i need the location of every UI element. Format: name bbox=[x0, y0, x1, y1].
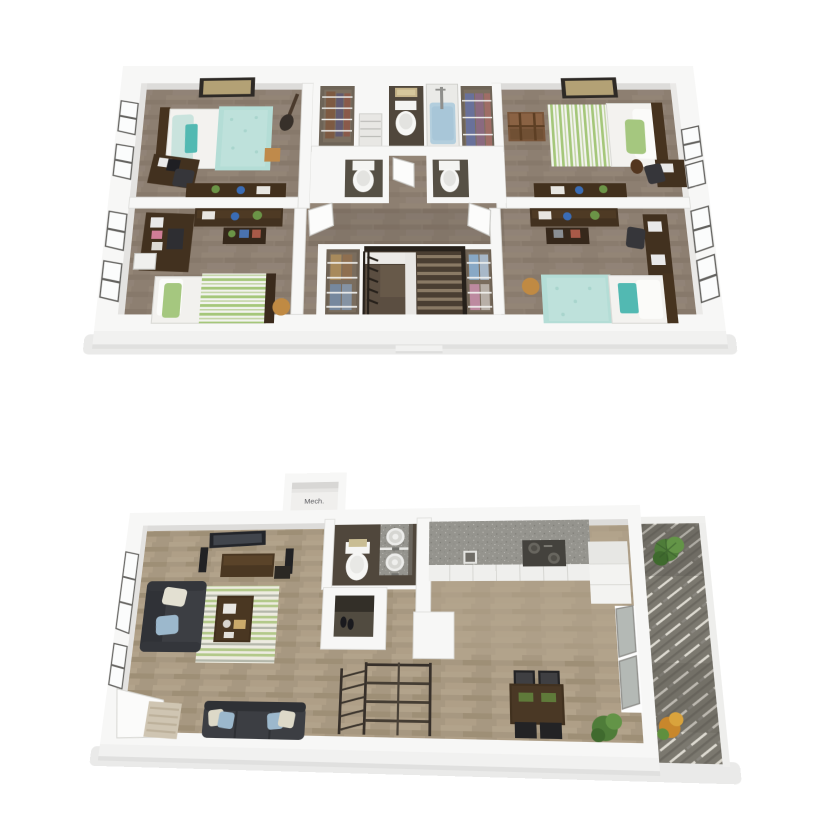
svg-text:Mech.: Mech. bbox=[304, 498, 325, 506]
